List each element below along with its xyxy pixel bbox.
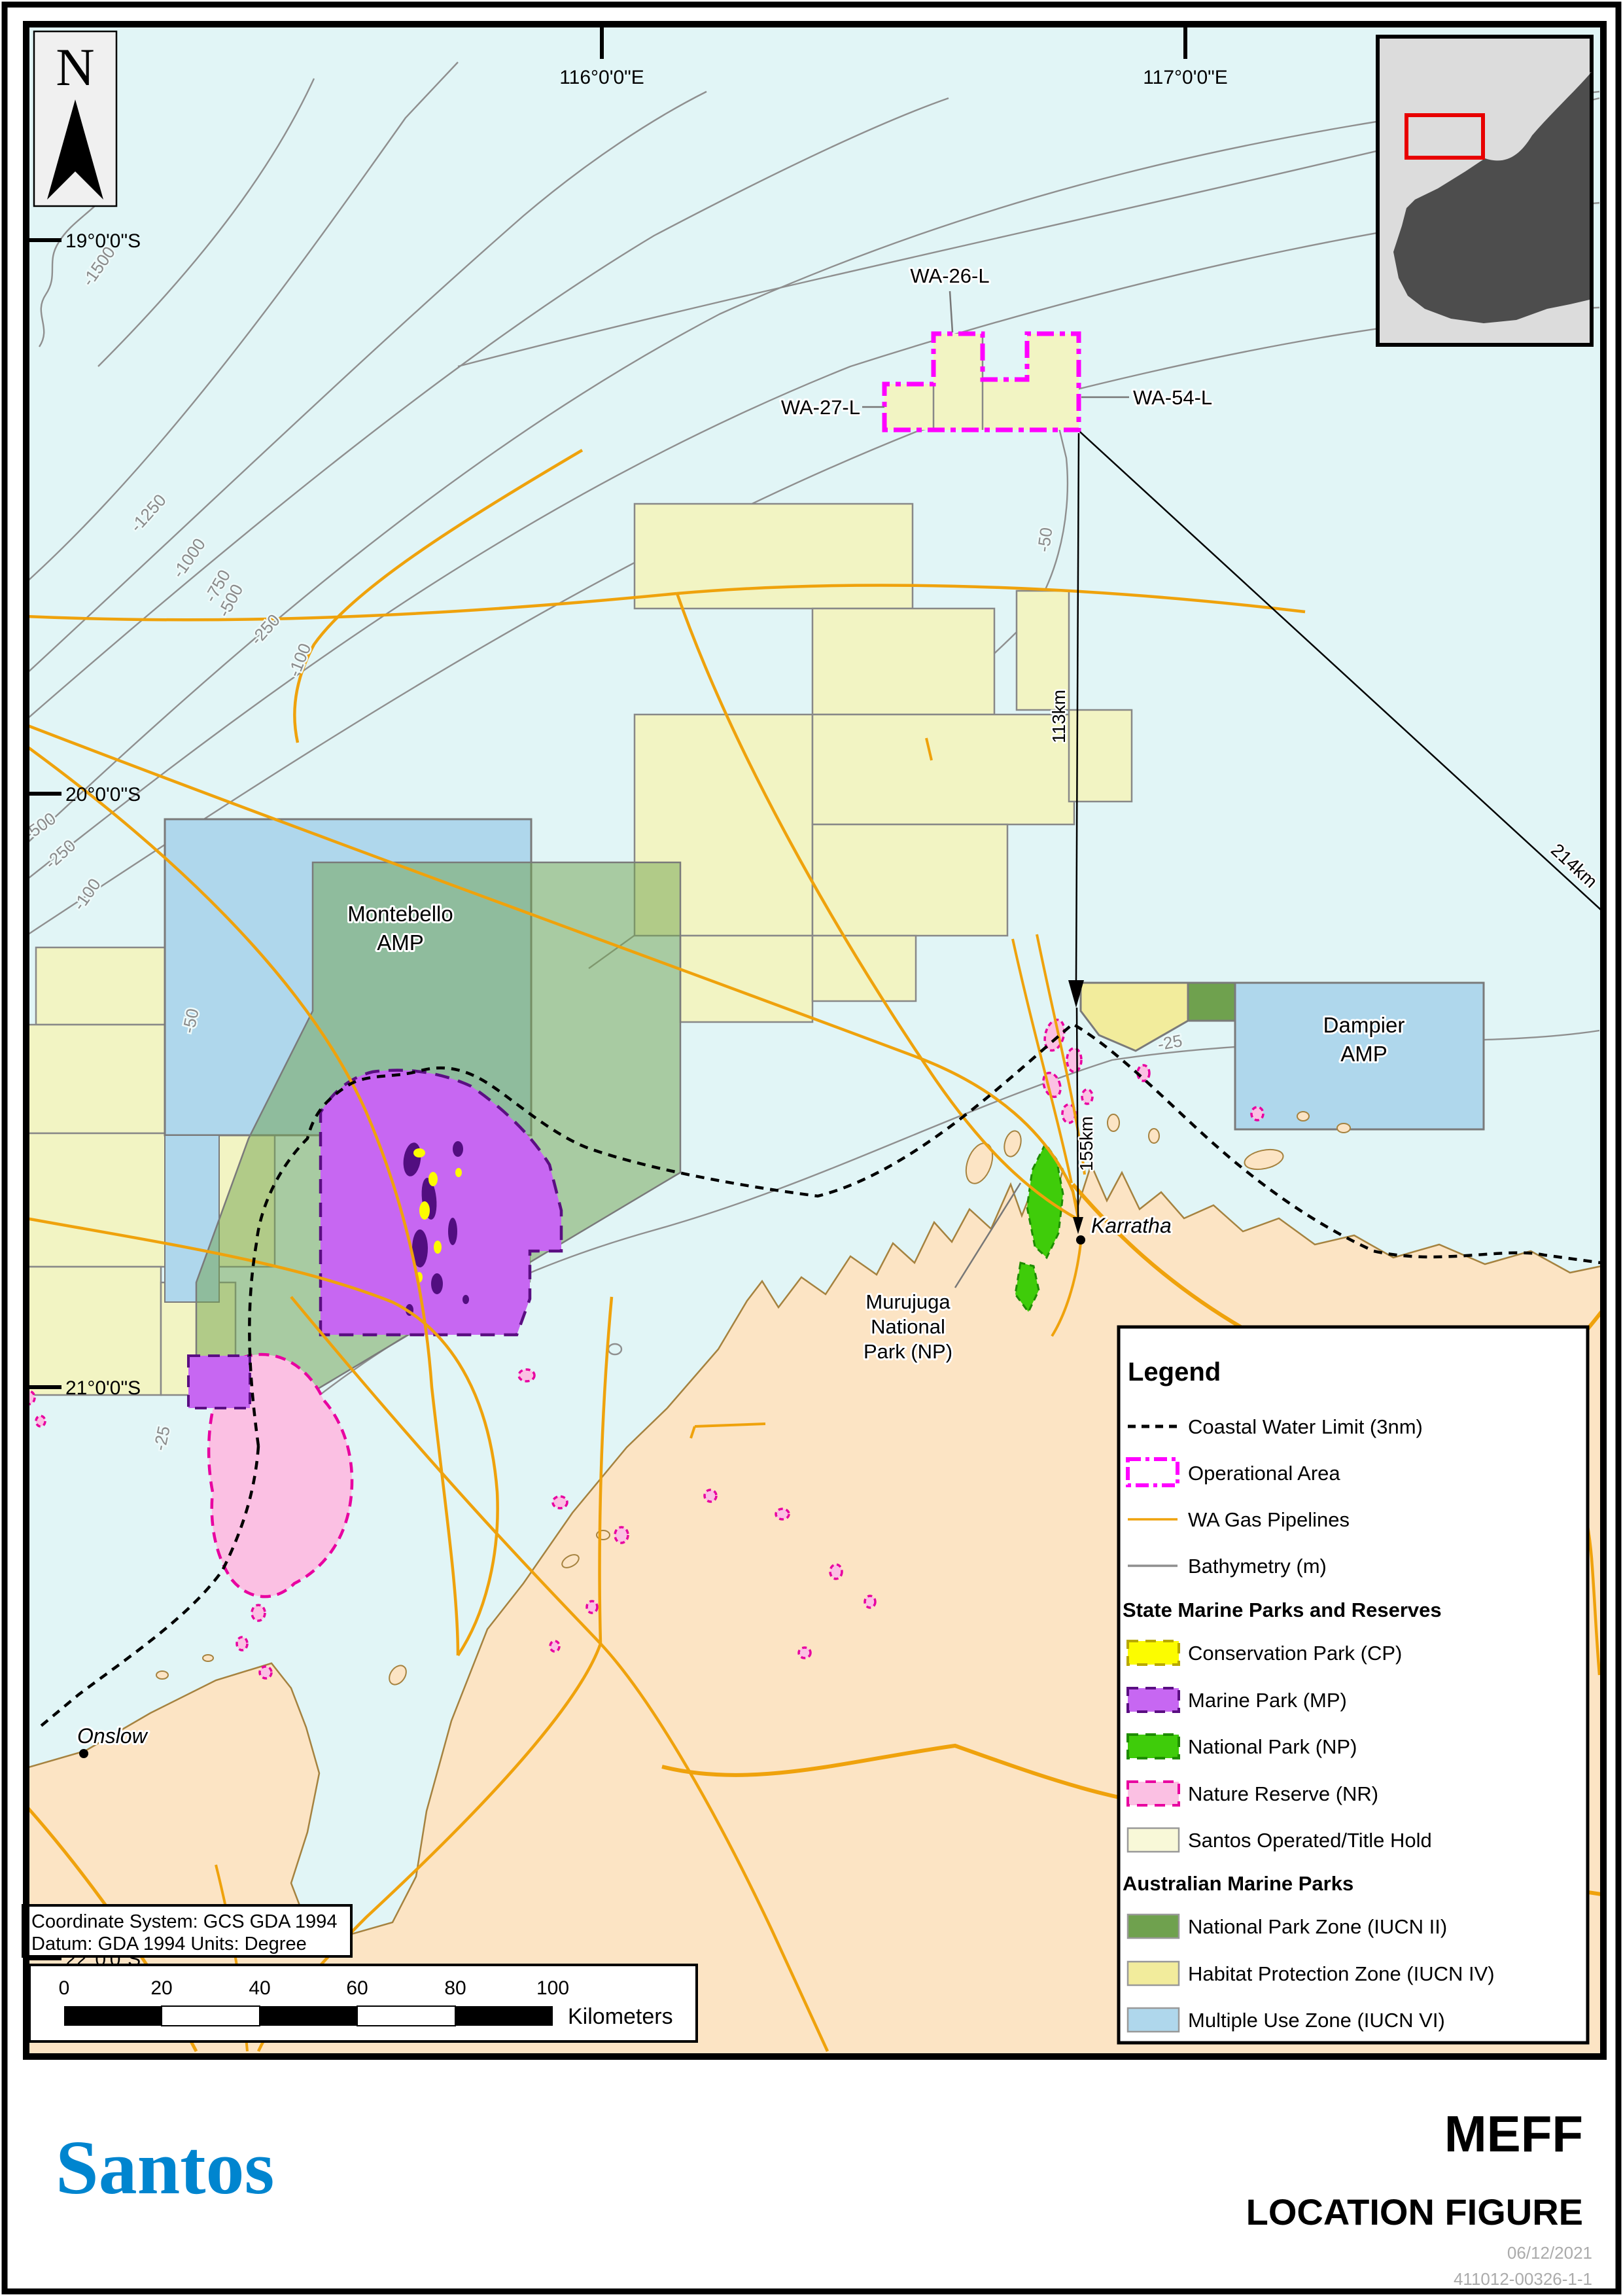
label-karratha: Karratha [1091,1214,1172,1237]
legend-label: Habitat Protection Zone (IUCN IV) [1188,1962,1495,1985]
legend-label: Bathymetry (m) [1188,1555,1327,1578]
legend-label: Marine Park (MP) [1188,1689,1347,1712]
scale-tick-label: 60 [346,1977,368,1999]
svg-text:-25: -25 [1156,1031,1183,1054]
label-wa-26-l: WA-26-L [910,264,989,287]
onslow-dot [79,1749,88,1758]
legend-symbol-nature-reserve [1128,1782,1179,1805]
scale-tick-label: 100 [536,1977,569,1999]
legend-label: Operational Area [1188,1462,1340,1485]
coordinate-system-line2: Datum: GDA 1994 Units: Degree [31,1934,307,1954]
north-arrow: N [34,31,116,206]
legend-symbol-conservation-park [1128,1641,1179,1665]
legend-label: Conservation Park (CP) [1188,1642,1402,1665]
legend-label: Nature Reserve (NR) [1188,1782,1378,1805]
legend-label: National Park (NP) [1188,1735,1357,1758]
lon-label-117e: 117°0'0"E [1143,67,1228,88]
coordinate-system-box: Coordinate System: GCS GDA 1994 Datum: G… [23,1905,351,1956]
scale-unit: Kilometers [568,2004,673,2029]
legend-label: Santos Operated/Title Hold [1188,1829,1432,1852]
label-113km: 113km [1049,690,1069,743]
legend-header-state: State Marine Parks and Reserves [1123,1598,1442,1621]
svg-text:AMP: AMP [377,930,424,955]
figure-date: 06/12/2021 [1507,2243,1592,2263]
scale-tick-label: 0 [59,1977,70,1999]
coordinate-system-line1: Coordinate System: GCS GDA 1994 [31,1911,337,1932]
label-dampier-amp: Dampier [1323,1013,1405,1037]
legend-label: Multiple Use Zone (IUCN VI) [1188,2009,1445,2032]
scale-tick-label: 80 [444,1977,466,1999]
svg-text:-50: -50 [1034,526,1056,553]
lat-label-19s: 19°0'0"S [65,230,141,252]
scale-tick-label: 40 [249,1977,270,1999]
label-murujuga-np: Murujuga [865,1290,951,1313]
lat-label-21s: 21°0'0"S [65,1377,141,1399]
legend-symbol-operational-area [1128,1459,1178,1485]
karratha-dot [1076,1235,1085,1245]
lon-label-116e: 116°0'0"E [559,67,644,88]
santos-logo: Santos [56,2125,274,2210]
lat-label-20s: 20°0'0"S [65,784,141,805]
legend-symbol-habitat-zone [1128,1962,1179,1985]
legend-symbol-np-zone [1128,1915,1179,1938]
legend-label: WA Gas Pipelines [1188,1508,1350,1531]
legend-symbol-multiple-use-zone [1128,2008,1179,2032]
label-onslow: Onslow [77,1724,148,1748]
title-block: Santos MEFF LOCATION FIGURE 06/12/2021 4… [56,2105,1592,2289]
legend-symbol-national-park [1128,1735,1179,1758]
svg-text:National: National [871,1315,945,1338]
legend-header-australian: Australian Marine Parks [1123,1872,1353,1895]
scale-bar: 0 20 40 60 80 100 Kilometers [29,1965,697,2041]
figure-subtitle: LOCATION FIGURE [1246,2191,1583,2233]
svg-text:Park (NP): Park (NP) [864,1340,952,1363]
legend-symbol-marine-park [1128,1688,1179,1712]
legend-symbol-santos-hold [1128,1828,1179,1852]
inset-map [1378,37,1592,345]
legend-label: Coastal Water Limit (3nm) [1188,1415,1423,1438]
map-figure: -1500 -1250 -1000 -750 -500 -500 -250 -2… [0,0,1623,2296]
legend-label: National Park Zone (IUCN II) [1188,1915,1447,1938]
north-label: N [56,37,94,97]
svg-text:AMP: AMP [1340,1042,1387,1066]
figure-title: MEFF [1444,2105,1583,2163]
legend: Legend Coastal Water Limit (3nm) Operati… [1119,1327,1588,2043]
scale-bar-segments [64,2006,553,2026]
figure-page: -1500 -1250 -1000 -750 -500 -500 -250 -2… [0,0,1623,2296]
scale-tick-label: 20 [150,1977,172,1999]
legend-title: Legend [1128,1358,1221,1386]
label-wa-54-l: WA-54-L [1133,386,1212,409]
label-wa-27-l: WA-27-L [781,396,860,419]
figure-docnumber: 411012-00326-1-1 [1454,2269,1592,2289]
label-montebello-amp: Montebello [347,902,453,926]
label-155km: 155km [1076,1116,1096,1171]
